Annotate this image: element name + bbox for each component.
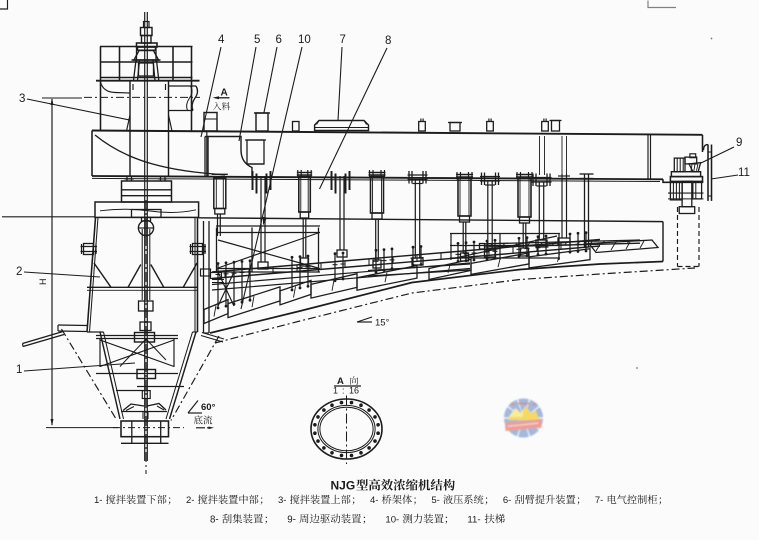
svg-text:2-: 2- <box>186 495 194 506</box>
svg-text:2: 2 <box>16 266 22 278</box>
svg-text:10: 10 <box>298 34 311 46</box>
svg-text:60°: 60° <box>201 402 216 413</box>
svg-text:8: 8 <box>385 35 391 47</box>
svg-text:1: 1 <box>333 386 338 396</box>
svg-text:A: A <box>221 88 228 99</box>
svg-text:1: 1 <box>16 364 22 376</box>
svg-text:5: 5 <box>254 34 260 46</box>
svg-text:16: 16 <box>349 386 359 396</box>
svg-text:6: 6 <box>276 34 282 46</box>
svg-text:11-: 11- <box>467 515 480 526</box>
svg-text:3: 3 <box>19 93 25 105</box>
svg-text:7: 7 <box>340 34 346 46</box>
svg-text:4: 4 <box>218 34 225 46</box>
svg-text:9: 9 <box>736 137 742 149</box>
svg-text:11: 11 <box>738 167 750 179</box>
svg-text:15°: 15° <box>375 318 390 329</box>
svg-text:5-: 5- <box>431 495 439 506</box>
svg-text:8-: 8- <box>210 515 219 526</box>
svg-text:9-: 9- <box>287 515 296 526</box>
svg-text:H: H <box>38 279 48 286</box>
svg-text:6-: 6- <box>503 495 511 506</box>
svg-text:10-: 10- <box>385 515 399 526</box>
svg-text:1-: 1- <box>94 495 102 506</box>
svg-text:7-: 7- <box>595 495 603 506</box>
svg-text:NJG: NJG <box>331 479 356 493</box>
svg-text:3-: 3- <box>278 495 286 506</box>
svg-text::: : <box>342 386 345 396</box>
svg-text:4-: 4- <box>370 495 378 506</box>
